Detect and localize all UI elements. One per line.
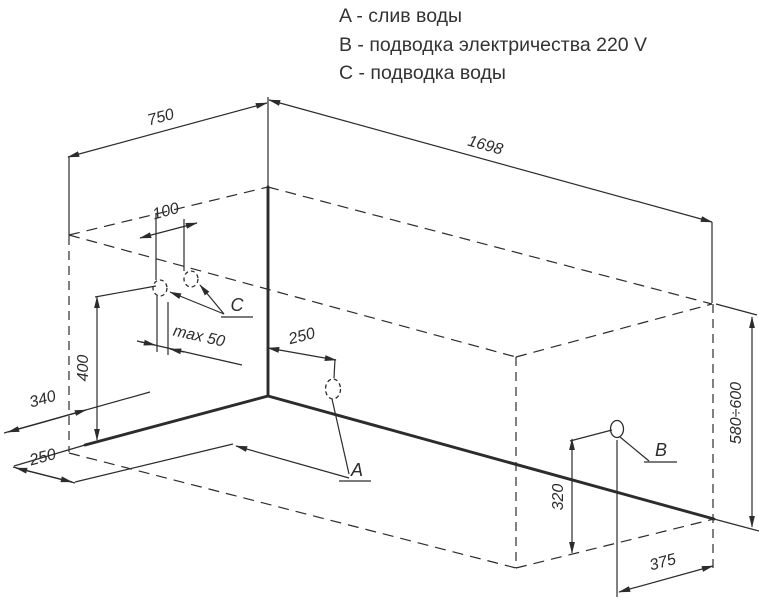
dim-drain-offset-250-text: 250 — [286, 325, 317, 348]
dim-length-1698-text: 1698 — [466, 133, 505, 159]
dim-electric-offset-375: 375 — [617, 440, 713, 597]
dim-water-height-400: 400 — [75, 286, 156, 440]
dim-electric-offset-375-text: 375 — [648, 551, 678, 574]
dim-floor-front-250-text: 250 — [27, 446, 58, 470]
dim-water-spacing-100-text: 100 — [151, 200, 181, 223]
water-point-c-right-circle — [184, 271, 198, 287]
dim-width-750-text: 750 — [146, 106, 176, 129]
bathtub-installation-drawing: A - слив воды B - подводка электричества… — [0, 0, 759, 600]
water-point-c-left-circle — [153, 280, 167, 296]
dim-length-1698: 1698 — [269, 100, 712, 303]
dim-electric-height-320-text: 320 — [550, 484, 567, 511]
drain-point-a-circle — [326, 379, 341, 399]
isometric-drawing: 750 1698 C 100 — [0, 0, 759, 600]
dim-water-height-400-text: 400 — [75, 355, 92, 382]
electric-point-b-circle — [611, 421, 624, 438]
dim-water-offset-max50-text: max 50 — [172, 323, 227, 351]
dim-water-spacing-100: 100 — [140, 200, 197, 280]
dim-electric-height-320: 320 — [550, 430, 612, 553]
dim-water-offset-max50: max 50 — [137, 296, 242, 365]
dim-floor-side-340-text: 340 — [28, 388, 58, 412]
drain-point-a: A — [236, 379, 371, 481]
electric-point-b-label: B — [655, 440, 667, 460]
drain-point-a-label: A — [350, 460, 363, 480]
dim-rim-height-580-600: 580÷600 — [716, 304, 757, 527]
dim-rim-height-580-600-text: 580÷600 — [728, 382, 745, 444]
dim-drain-offset-250: 250 — [268, 325, 336, 378]
dim-floor-front-250: 250 — [13, 444, 233, 483]
floor-base-lines — [14, 396, 759, 531]
electric-point-b: B — [611, 421, 678, 463]
water-point-c-label: C — [231, 295, 245, 315]
dim-floor-side-340: 340 — [4, 388, 150, 433]
